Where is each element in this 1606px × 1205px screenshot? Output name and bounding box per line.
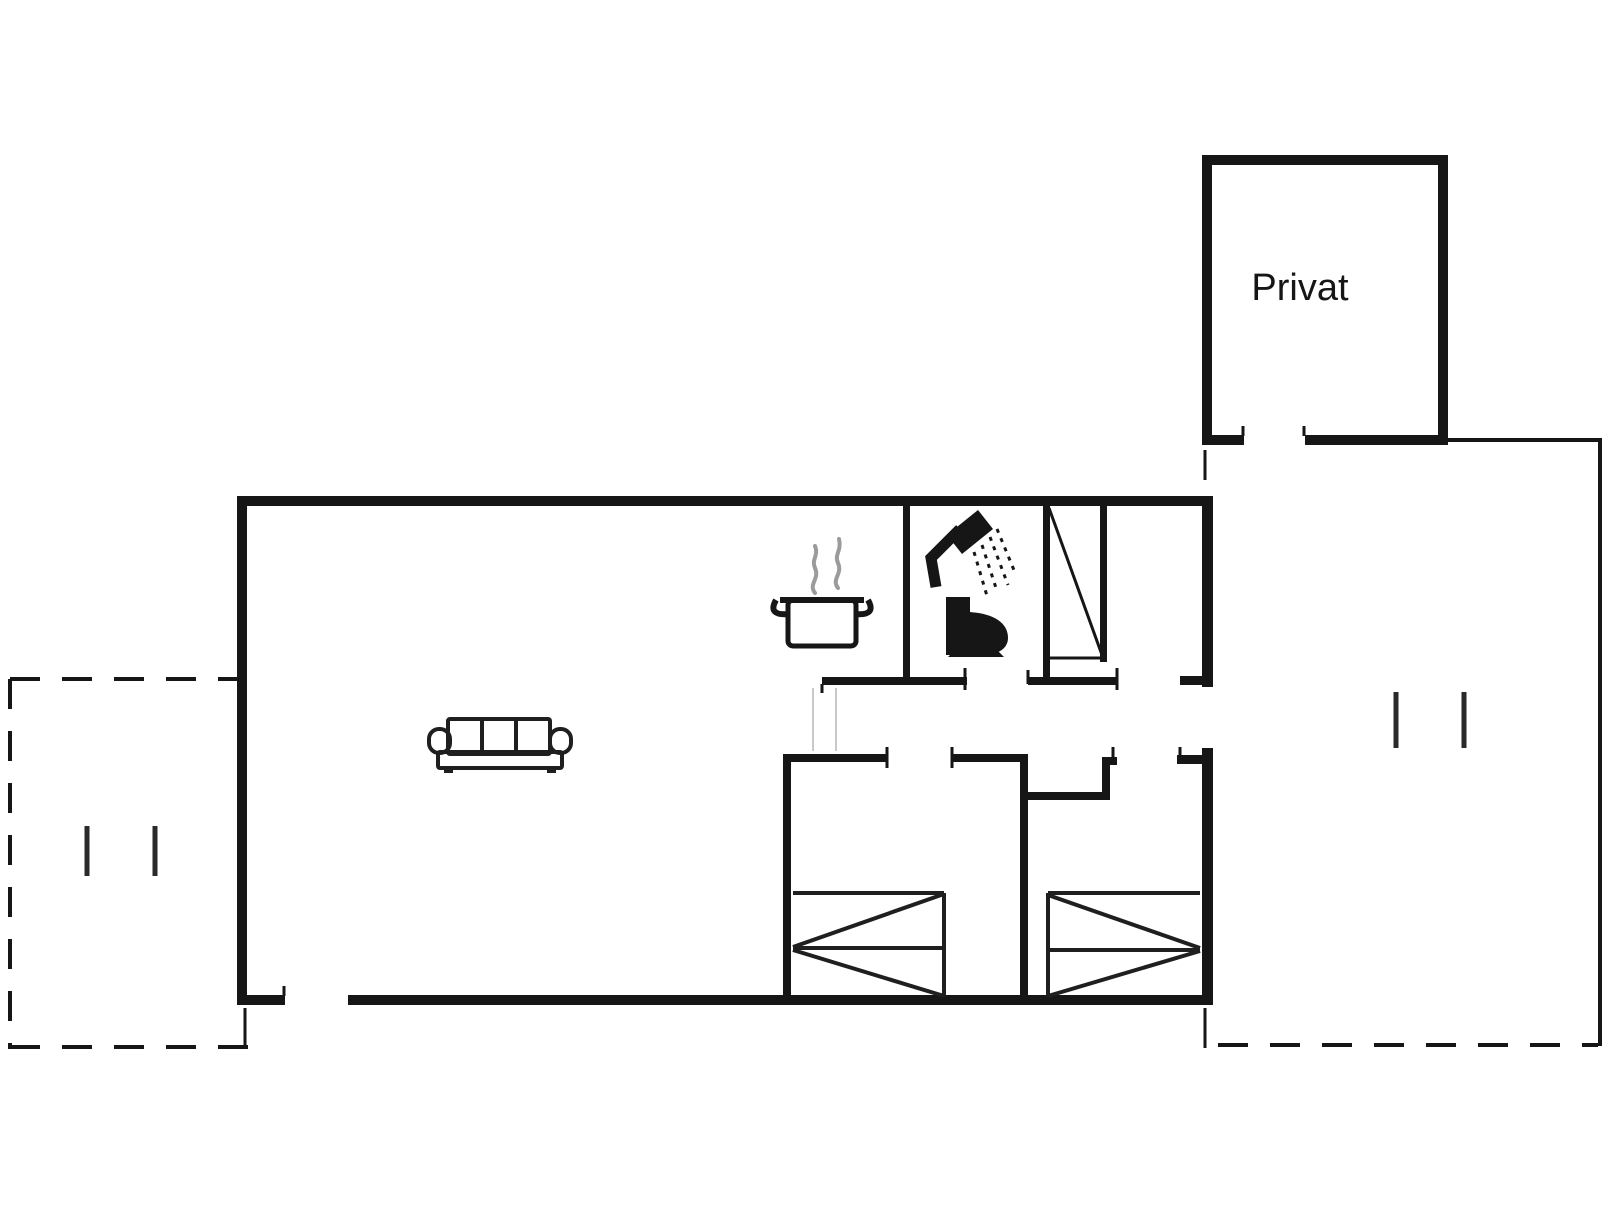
privat-room: Privat — [1202, 155, 1448, 445]
wall-left — [237, 496, 247, 1005]
steam-icon — [813, 546, 817, 593]
bedroom1-wall-top-right — [952, 754, 1028, 762]
main-building-walls — [237, 496, 1213, 1005]
toilet-icon — [946, 597, 1008, 657]
bathroom-wall-bottom-right — [1028, 677, 1117, 685]
floor-plan-drawing: Privat — [0, 0, 1606, 1205]
wardrobe-icon — [1047, 506, 1107, 662]
sofa-icon — [429, 719, 571, 773]
wall-right-door-return-top — [1180, 676, 1210, 685]
interior-walls — [284, 506, 1180, 1000]
wall-right-door-return-bottom — [1177, 755, 1213, 764]
bed-icon-right — [1048, 893, 1200, 997]
sofa-back-cushions — [448, 719, 550, 754]
floor-plan-page: Privat — [0, 0, 1606, 1205]
shower-head — [947, 510, 993, 554]
bedroom-divider-wall — [1020, 754, 1028, 1000]
sofa-foot — [444, 768, 453, 773]
privat-wall-right — [1438, 155, 1448, 445]
cooking-pot-icon — [773, 539, 870, 646]
bed-icon-left — [793, 893, 944, 997]
sofa-armrest-right — [550, 729, 571, 753]
wall-top — [237, 496, 1213, 506]
privat-wall-bottom-right — [1305, 435, 1448, 445]
bed-diagonal — [793, 894, 944, 947]
toilet-base — [948, 648, 1004, 657]
wall-bottom-left-segment — [237, 995, 285, 1005]
bed-diagonal — [1048, 951, 1200, 996]
terrace-left — [10, 679, 248, 1049]
wall-bottom-main-segment — [348, 995, 1213, 1005]
pot-body — [788, 600, 856, 646]
privat-wall-top — [1202, 155, 1448, 165]
bedroom1-wall-top-left — [783, 754, 887, 762]
annex-door-opening-marks — [1396, 692, 1464, 748]
wardrobe-wall-right — [1100, 506, 1107, 662]
wall-right-upper — [1202, 496, 1213, 687]
shower-icon — [931, 510, 1016, 596]
annex-right — [1205, 438, 1602, 1048]
bed-diagonal — [1048, 895, 1200, 948]
terrace-door-opening-marks — [87, 826, 155, 876]
sofa-foot — [547, 768, 556, 773]
shower-spray — [997, 529, 1016, 575]
privat-wall-bottom-left — [1202, 435, 1244, 445]
privat-wall-left — [1202, 155, 1212, 445]
shower-spray — [990, 537, 1008, 585]
wardrobe-diagonal-line — [1049, 508, 1102, 655]
bedroom2-wall-horizontal — [1028, 792, 1110, 800]
bedroom1-wall-left — [783, 754, 791, 1000]
bedroom2-wall-nub — [1102, 757, 1117, 765]
steam-icon — [836, 539, 840, 588]
bed-diagonal — [793, 950, 944, 996]
bathroom-wall-bottom-left — [822, 677, 967, 685]
privat-room-label: Privat — [1251, 267, 1349, 309]
wall-right-lower — [1202, 748, 1213, 1005]
bathroom-wall-left — [903, 506, 910, 685]
